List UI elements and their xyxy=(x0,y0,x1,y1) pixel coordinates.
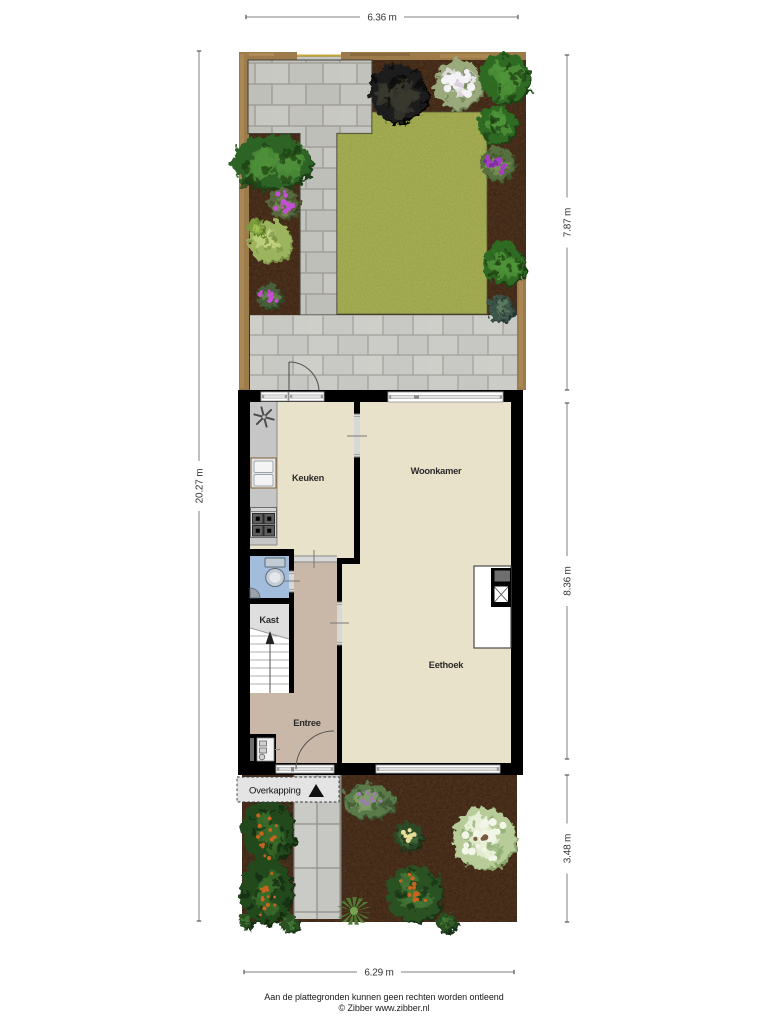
svg-text:Kast: Kast xyxy=(259,615,278,625)
svg-text:Overkapping: Overkapping xyxy=(249,786,301,797)
svg-text:Eethoek: Eethoek xyxy=(429,660,464,670)
svg-text:Entree: Entree xyxy=(293,718,321,728)
svg-text:20.27 m: 20.27 m xyxy=(195,469,206,504)
svg-text:6.36 m: 6.36 m xyxy=(367,13,396,24)
svg-text:7.87 m: 7.87 m xyxy=(563,208,574,237)
svg-text:8.36 m: 8.36 m xyxy=(563,566,574,595)
svg-text:6.29 m: 6.29 m xyxy=(364,968,393,979)
svg-text:Aan de plattegronden kunnen ge: Aan de plattegronden kunnen geen rechten… xyxy=(264,992,503,1002)
svg-text:Keuken: Keuken xyxy=(292,473,325,483)
svg-text:© Zibber www.zibber.nl: © Zibber www.zibber.nl xyxy=(338,1003,429,1013)
svg-text:3.48 m: 3.48 m xyxy=(563,834,574,863)
svg-text:Woonkamer: Woonkamer xyxy=(411,466,462,476)
